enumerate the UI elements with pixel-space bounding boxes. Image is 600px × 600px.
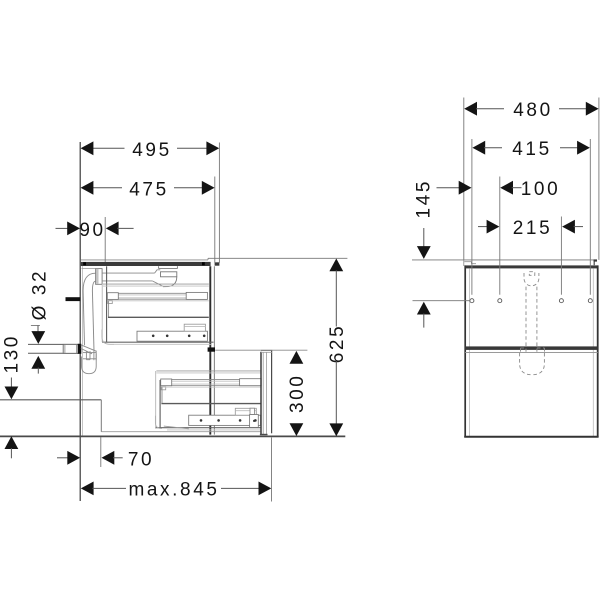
svg-text:Ø 32: Ø 32 bbox=[30, 269, 51, 321]
svg-text:495: 495 bbox=[132, 140, 172, 161]
svg-text:max.845: max.845 bbox=[128, 480, 219, 501]
svg-text:300: 300 bbox=[287, 374, 308, 414]
svg-text:70: 70 bbox=[128, 449, 154, 470]
svg-text:145: 145 bbox=[413, 179, 434, 219]
svg-text:130: 130 bbox=[1, 334, 22, 374]
svg-text:90: 90 bbox=[79, 220, 105, 241]
svg-text:415: 415 bbox=[512, 139, 552, 160]
svg-text:625: 625 bbox=[327, 324, 348, 364]
svg-text:480: 480 bbox=[513, 100, 553, 121]
svg-text:215: 215 bbox=[513, 218, 553, 239]
svg-text:100: 100 bbox=[521, 179, 561, 200]
svg-text:475: 475 bbox=[129, 179, 169, 200]
